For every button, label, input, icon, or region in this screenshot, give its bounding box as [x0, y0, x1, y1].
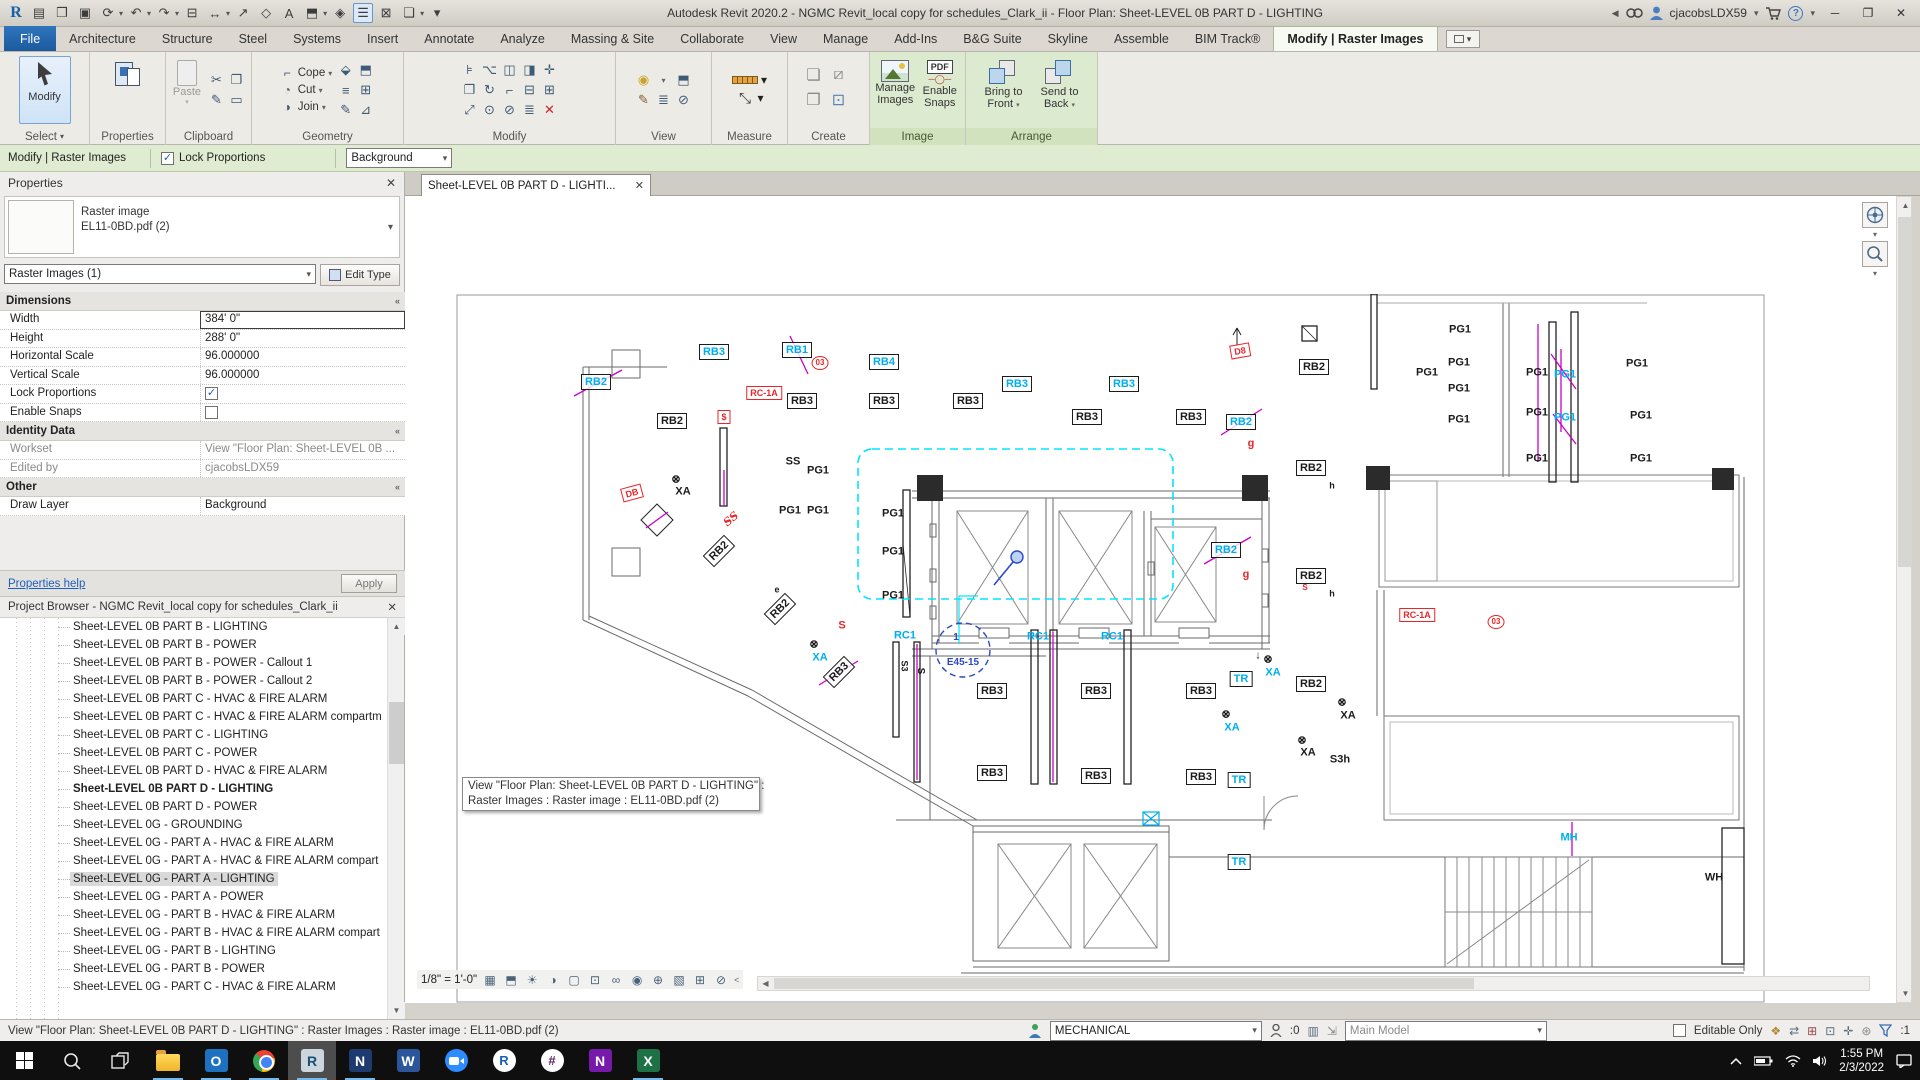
scroll-up-icon[interactable]: ▲ — [388, 618, 405, 635]
status-drag-on-selection-icon[interactable]: ✛ — [1843, 1024, 1853, 1038]
taskbar-clock[interactable]: 1:55 PM 2/3/2022 — [1839, 1047, 1884, 1075]
dimension-button[interactable]: ▾ — [732, 73, 767, 87]
ribbon-tab-assemble[interactable]: Assemble — [1101, 26, 1182, 51]
status-filter-icon[interactable] — [1879, 1024, 1892, 1037]
wall-opening-icon[interactable]: ⬒ — [356, 61, 375, 80]
status-gear-icon[interactable]: ⊛ — [1861, 1024, 1871, 1038]
element-filter-dropdown[interactable]: Raster Images (1)▾ — [4, 264, 316, 284]
browser-item[interactable]: Sheet-LEVEL 0B PART B - POWER - Callout … — [0, 672, 388, 690]
draw-layer-dropdown[interactable]: Background▾ — [346, 148, 452, 168]
browser-item[interactable]: Sheet-LEVEL 0G - PART B - LIGHTING — [0, 942, 388, 960]
action-center-icon[interactable] — [1896, 1054, 1912, 1068]
help-icon[interactable]: ? — [1788, 6, 1803, 21]
lightbulb-icon[interactable]: ◉ — [634, 71, 653, 90]
hide-analytical-model-icon[interactable]: ⊞ — [692, 972, 708, 988]
redo-icon-chevron[interactable]: ▾ — [175, 9, 179, 18]
vertical-scrollbar[interactable]: ▲ ▼ — [1896, 196, 1912, 1003]
plan-label-g: g — [1248, 439, 1255, 450]
match-type-icon[interactable]: ✎ — [207, 91, 226, 110]
view-tab-close-icon[interactable]: ✕ — [635, 179, 644, 192]
taskbar-app-bluebeam-revu[interactable]: R — [480, 1041, 528, 1080]
revit-logo[interactable]: R — [6, 3, 26, 23]
browser-item[interactable]: Sheet-LEVEL 0G - PART A - POWER — [0, 888, 388, 906]
properties-close-icon[interactable]: ✕ — [386, 176, 396, 190]
active-workset-dropdown[interactable]: MECHANICAL▾ — [1050, 1021, 1262, 1041]
property-value[interactable]: cjacobsLDX59 — [200, 460, 405, 478]
plan-label-RB2: RB2 — [1211, 542, 1241, 558]
property-row-lock-proportions[interactable]: Lock Proportions✓ — [0, 385, 405, 404]
search-icon[interactable] — [1626, 7, 1643, 20]
create-similar-icon[interactable]: ⧄ — [829, 66, 848, 85]
snap-icon: ─◯─ — [928, 74, 951, 85]
property-value[interactable]: 96.000000 — [200, 348, 405, 366]
app-store-cart-icon[interactable] — [1765, 7, 1781, 20]
beam-coping-icon[interactable]: ⬙ — [336, 61, 355, 80]
worksets-dialog-icon[interactable]: ▥ — [1308, 1024, 1319, 1038]
help-menu-chevron-icon[interactable]: ▾ — [1810, 8, 1815, 19]
plan-label-TR: TR — [1228, 772, 1251, 788]
view-scale-button[interactable]: 1/8" = 1'-0" — [421, 974, 477, 986]
property-row-width[interactable]: Width384' 0" — [0, 311, 405, 330]
plan-label-RB2: RB2 — [703, 535, 736, 568]
property-label: Lock Proportions — [0, 385, 200, 403]
join-button[interactable]: ◑Join▾ — [280, 100, 333, 115]
plan-label-PG1: PG1 — [882, 547, 904, 558]
panel-label-select[interactable]: Select▾ — [0, 128, 89, 145]
scale-icon[interactable]: ⤢ — [460, 101, 479, 120]
panel-modify: ⊧⌥◫◨✛❐↻⌐⊟⊞⤢⊙⊘≣✕ Modify — [404, 52, 616, 145]
ribbon-tab-b-g-suite[interactable]: B&G Suite — [950, 26, 1034, 51]
property-label: Height — [0, 330, 200, 348]
property-value[interactable]: ✓ — [200, 385, 405, 403]
status-arrow-icon[interactable]: ⇲ — [1327, 1024, 1337, 1038]
copy-icon[interactable]: ❐ — [460, 81, 479, 100]
ribbon-tab-architecture[interactable]: Architecture — [56, 26, 149, 51]
panel-label-view[interactable]: View — [616, 128, 711, 145]
project-browser-title: Project Browser - NGMC Revit_local copy … — [8, 601, 338, 613]
excel-icon: X — [637, 1049, 660, 1072]
panel-label-clipboard[interactable]: Clipboard — [166, 128, 251, 145]
create-assembly-icon[interactable]: ❐ — [804, 91, 823, 110]
ribbon-tab-steel[interactable]: Steel — [226, 26, 281, 51]
property-row-draw-layer[interactable]: Draw LayerBackground — [0, 497, 405, 516]
unpin-icon[interactable]: ⊘ — [500, 101, 519, 120]
panel-label-arrange[interactable]: Arrange — [966, 128, 1097, 145]
type-category: Raster image — [81, 205, 170, 220]
shadows-icon[interactable]: ◑ — [545, 972, 561, 988]
scrollbar-thumb[interactable] — [389, 702, 404, 764]
browser-item[interactable]: Sheet-LEVEL 0B PART D - HVAC & FIRE ALAR… — [0, 762, 388, 780]
ribbon-tab-skyline[interactable]: Skyline — [1035, 26, 1101, 51]
lock-proportions-checkbox[interactable]: ✓ — [161, 152, 174, 165]
browser-item[interactable]: Sheet-LEVEL 0B PART C - POWER — [0, 744, 388, 762]
view-chevron-icon[interactable]: ▾ — [654, 71, 673, 90]
browser-item[interactable]: Sheet-LEVEL 0B PART D - POWER — [0, 798, 388, 816]
viewbar-collapse-icon[interactable]: < — [734, 975, 739, 985]
cut-to-clipboard-icon[interactable]: ✂ — [207, 71, 226, 90]
properties-window-icon[interactable]: ▤ — [29, 3, 49, 23]
save-icon[interactable]: ▣ — [75, 3, 95, 23]
plan-label-TR: TR — [1230, 671, 1253, 687]
editable-only-checkbox[interactable] — [1673, 1024, 1686, 1037]
plan-label-RC1: RC1 — [1101, 632, 1123, 643]
plan-label-RB3: RB3 — [787, 393, 817, 409]
text-icon[interactable]: A — [279, 3, 299, 23]
browser-item[interactable]: Sheet-LEVEL 0B PART C - LIGHTING — [0, 726, 388, 744]
override-graphics-icon[interactable]: ≣ — [654, 91, 673, 110]
sun-path-icon[interactable]: ☀ — [524, 972, 540, 988]
property-value[interactable]: 288' 0" — [200, 330, 405, 348]
ribbon-tab-massing-site[interactable]: Massing & Site — [558, 26, 667, 51]
thin-lines-icon[interactable]: ☰ — [353, 3, 373, 23]
taskbar-app-chrome[interactable] — [240, 1041, 288, 1080]
property-value[interactable]: Background — [200, 497, 405, 515]
hammer-icon[interactable]: ⊿ — [356, 101, 375, 120]
measure-icon[interactable]: ↗ — [233, 3, 253, 23]
show-crop-region-icon[interactable]: ⊡ — [587, 972, 603, 988]
taskbar-app-zoom[interactable] — [432, 1041, 480, 1080]
switch-windows-icon[interactable]: ❏ — [399, 3, 419, 23]
paintbrush-icon[interactable]: ✎ — [634, 91, 653, 110]
project-browser-close-icon[interactable]: ✕ — [387, 600, 397, 614]
ribbon-tab-analyze[interactable]: Analyze — [487, 26, 557, 51]
trim-icon[interactable]: ⌐ — [500, 81, 519, 100]
outlook-icon: O — [205, 1049, 228, 1072]
mirror-icon[interactable]: ◫ — [500, 61, 519, 80]
demolish-icon[interactable]: ≡ — [336, 81, 355, 100]
taskbar-app-outlook[interactable]: O — [192, 1041, 240, 1080]
browser-item[interactable]: Sheet-LEVEL 0G - PART B - HVAC & FIRE AL… — [0, 906, 388, 924]
worksharing-display-icon[interactable]: ⊕ — [650, 972, 666, 988]
send-to-back-icon — [1045, 60, 1075, 86]
ribbon-tab-file[interactable]: File — [4, 26, 56, 51]
browser-item[interactable]: Sheet-LEVEL 0G - PART A - HVAC & FIRE AL… — [0, 834, 388, 852]
modify-button[interactable]: Modify — [19, 56, 71, 124]
panel-label-image[interactable]: Image — [870, 128, 965, 145]
revit-icon: R — [301, 1049, 324, 1072]
bring-to-front-button[interactable]: Bring toFront ▾ — [978, 56, 1030, 124]
panel-label-geometry[interactable]: Geometry — [252, 128, 403, 145]
redo-icon[interactable]: ↷ — [154, 3, 174, 23]
ribbon-display-icon — [1454, 35, 1464, 43]
property-row-vertical-scale[interactable]: Vertical Scale96.000000 — [0, 367, 405, 386]
visual-style-icon[interactable]: ⬒ — [503, 972, 519, 988]
clipboard-extra-icon[interactable]: ▭ — [227, 91, 246, 110]
enable-snaps-button[interactable]: PDF ─◯─ EnableSnaps — [920, 56, 961, 124]
bluebeam-revu-icon: R — [493, 1049, 516, 1072]
sync-with-central-icon[interactable]: ⟳ — [98, 3, 118, 23]
render-icon[interactable]: ⬒ — [674, 71, 693, 90]
options-context-label: Modify | Raster Images — [0, 152, 126, 164]
ribbon-tab-insert[interactable]: Insert — [354, 26, 411, 51]
plan-label-h: h — [1329, 482, 1335, 491]
property-row-workset[interactable]: WorksetView "Floor Plan: Sheet-LEVEL 0B … — [0, 441, 405, 460]
copy-to-clipboard-icon[interactable]: ❐ — [227, 71, 246, 90]
mirror-draw-icon[interactable]: ◨ — [520, 61, 539, 80]
status-keynote-icon[interactable]: ❖ — [1770, 1024, 1781, 1038]
rotate-icon[interactable]: ↻ — [480, 81, 499, 100]
cut-button[interactable]: ◔Cut▾ — [280, 83, 333, 98]
chrome-icon — [253, 1050, 275, 1072]
property-value[interactable]: 96.000000 — [200, 367, 405, 385]
minimize-button[interactable]: ─ — [1822, 3, 1848, 23]
switch-windows-icon-chevron[interactable]: ▾ — [420, 9, 424, 18]
ribbon-tab-modify-raster-images[interactable]: Modify | Raster Images — [1273, 26, 1437, 51]
qat-customize-icon[interactable]: ▾ — [427, 3, 447, 23]
browser-item[interactable]: Sheet-LEVEL 0B PART B - LIGHTING — [0, 618, 388, 636]
plan-label-⊗: ⊗ — [809, 640, 818, 651]
property-row-edited-by[interactable]: Edited bycjacobsLDX59 — [0, 460, 405, 479]
view-tab[interactable]: Sheet-LEVEL 0B PART D - LIGHTI...✕ — [421, 174, 651, 196]
align-icon[interactable]: ⊧ — [460, 61, 479, 80]
plan-label-PG1: PG1 — [1554, 370, 1576, 381]
notepad-icon: N — [349, 1049, 372, 1072]
scroll-down-icon[interactable]: ▼ — [388, 1002, 405, 1019]
create-group-icon[interactable]: ❏ — [804, 66, 823, 85]
plan-label-XA: XA — [1340, 711, 1355, 722]
panel-clipboard: Paste▾ ✂ ❐ ✎ ▭ Clipboard — [166, 52, 252, 145]
type-selector[interactable]: Raster image EL11-0BD.pdf (2) ▾ — [4, 196, 400, 258]
taskbar-app-excel[interactable]: X — [624, 1041, 672, 1080]
plan-label-S: S — [838, 621, 845, 632]
temporary-hide-isolate-icon[interactable]: ∞ — [608, 972, 624, 988]
browser-item[interactable]: Sheet-LEVEL 0G - PART B - HVAC & FIRE AL… — [0, 924, 388, 942]
panel-label-create[interactable]: Create — [788, 128, 869, 145]
ribbon-tab-add-ins[interactable]: Add-Ins — [881, 26, 950, 51]
detail-level-icon[interactable]: ▦ — [482, 972, 498, 988]
design-option-dropdown[interactable]: Main Model▾ — [1345, 1021, 1547, 1041]
undo-icon[interactable]: ↶ — [126, 3, 146, 23]
ribbon-display-toggle[interactable]: ▾ — [1446, 30, 1480, 48]
plan-label-PG1: PG1 — [1630, 454, 1652, 465]
enable-snaps-checkbox[interactable] — [205, 406, 218, 419]
taskbar-app-file-explorer[interactable] — [144, 1041, 192, 1080]
volume-icon[interactable] — [1813, 1055, 1827, 1067]
lock-proportions-label: Lock Proportions — [179, 152, 265, 164]
tag-icon[interactable]: ◇ — [256, 3, 276, 23]
ruler-icon — [732, 76, 758, 84]
plan-label-DB: DB — [620, 484, 644, 503]
default-3d-view-icon-chevron[interactable]: ▾ — [323, 9, 327, 18]
linework-icon[interactable]: ⊘ — [674, 91, 693, 110]
plan-label-PG1: PG1 — [1448, 358, 1470, 369]
windows-taskbar: ORNWR#NX 1:55 PM 2/3/2022 — [0, 1041, 1920, 1080]
lock-proportions-checkbox[interactable]: ✓ — [205, 387, 218, 400]
offset-icon[interactable]: ⌥ — [480, 61, 499, 80]
open-icon[interactable]: ❒ — [52, 3, 72, 23]
plan-label-TR: TR — [1228, 854, 1251, 870]
plan-label-PG1: PG1 — [1448, 415, 1470, 426]
plan-label-XA: XA — [1265, 668, 1280, 679]
plan-label-PG1: PG1 — [1449, 325, 1471, 336]
taskbar-search-button[interactable] — [48, 1041, 96, 1080]
section-icon[interactable]: ◈ — [330, 3, 350, 23]
pin-icon[interactable]: ⊙ — [480, 101, 499, 120]
ribbon-tab-view[interactable]: View — [757, 26, 810, 51]
scroll-up-icon[interactable]: ▲ — [1897, 197, 1914, 214]
property-section-identity-data[interactable]: Identity Data« — [0, 422, 405, 441]
plan-label-S: S — [915, 668, 925, 675]
model-canvas[interactable]: RB3RB103RB4RB3RB3RB3RB3RB3RB3RB3RB2RB2RB… — [405, 196, 1896, 1003]
type-selector-chevron-icon[interactable]: ▾ — [388, 222, 399, 233]
zoom-icon — [445, 1049, 468, 1072]
browser-item[interactable]: Sheet-LEVEL 0B PART B - POWER — [0, 636, 388, 654]
property-label: Enable Snaps — [0, 404, 200, 422]
ribbon-tab-bim-track-[interactable]: BIM Track® — [1182, 26, 1273, 51]
plan-label-RB3: RB3 — [869, 393, 899, 409]
property-section-other[interactable]: Other« — [0, 478, 405, 497]
restore-button[interactable]: ❐ — [1855, 3, 1881, 23]
split-icon[interactable]: ⊟ — [520, 81, 539, 100]
status-exclude-links-icon[interactable]: ⇄ — [1789, 1024, 1799, 1038]
panel-label-measure[interactable]: Measure — [712, 128, 787, 145]
panel-label-properties[interactable]: Properties — [90, 128, 165, 145]
edit-type-button[interactable]: Edit Type — [320, 264, 400, 286]
taskbar-app-onenote[interactable]: N — [576, 1041, 624, 1080]
task-view-button[interactable] — [96, 1041, 144, 1080]
delete-icon[interactable]: ✕ — [540, 101, 559, 120]
view-tab-bar: Sheet-LEVEL 0B PART D - LIGHTI...✕ — [405, 172, 1920, 196]
browser-item[interactable]: Sheet-LEVEL 0B PART C - HVAC & FIRE ALAR… — [0, 708, 388, 726]
default-3d-view-icon[interactable]: ⬒ — [302, 3, 322, 23]
print-icon[interactable]: ⊟ — [182, 3, 202, 23]
panel-create: ❏ ⧄ ❐ ⊡ Create — [788, 52, 870, 145]
send-to-back-button[interactable]: Send toBack ▾ — [1034, 56, 1086, 124]
plan-label-PG1: PG1 — [779, 506, 801, 517]
panel-label-modify[interactable]: Modify — [404, 128, 615, 145]
property-row-enable-snaps[interactable]: Enable Snaps — [0, 404, 405, 423]
unjoin-icon[interactable]: ⊞ — [356, 81, 375, 100]
ribbon: Modify Select▾ Properties Paste▾ ✂ — [0, 52, 1920, 145]
property-value[interactable] — [200, 404, 405, 422]
property-value[interactable]: View "Floor Plan: Sheet-LEVEL 0B ... — [200, 441, 405, 459]
edit-type-icon — [329, 269, 341, 281]
apply-button[interactable]: Apply — [341, 574, 397, 593]
wifi-icon[interactable] — [1785, 1055, 1801, 1067]
browser-item[interactable]: Sheet-LEVEL 0G - PART B - POWER — [0, 960, 388, 978]
reveal-hidden-elements-icon[interactable]: ◉ — [629, 972, 645, 988]
horizontal-scrollbar[interactable]: ◀ — [757, 976, 1870, 991]
plan-label-WH: WH — [1705, 873, 1723, 884]
property-label: Workset — [0, 441, 200, 459]
move-icon[interactable]: ✛ — [540, 61, 559, 80]
property-value[interactable]: 384' 0" — [200, 311, 405, 329]
user-menu-chevron-icon[interactable]: ▾ — [1754, 8, 1759, 19]
browser-item[interactable]: Sheet-LEVEL 0G - PART A - LIGHTING — [0, 870, 388, 888]
battery-icon[interactable] — [1754, 1056, 1773, 1066]
manage-images-button[interactable]: ManageImages — [875, 56, 916, 124]
plan-label-⊗: ⊗ — [1263, 655, 1272, 666]
taskbar-app-word[interactable]: W — [384, 1041, 432, 1080]
status-select-underlay-icon[interactable]: ⊡ — [1825, 1024, 1835, 1038]
panel-view: ◉ ▾ ⬒ ✎ ≣ ⊘ View — [616, 52, 712, 145]
property-label: Vertical Scale — [0, 367, 200, 385]
plan-label-h: h — [1329, 590, 1335, 599]
temporary-view-properties-icon[interactable]: ▧ — [671, 972, 687, 988]
zoom-chevron-icon[interactable]: ▾ — [1862, 269, 1888, 278]
plan-label-RC-1A: RC-1A — [1399, 608, 1435, 622]
plan-label-1: 1 — [953, 633, 959, 643]
aligned-dimension-icon[interactable]: ↔ — [205, 3, 225, 23]
undo-icon-chevron[interactable]: ▾ — [147, 9, 151, 18]
ribbon-tab-structure[interactable]: Structure — [149, 26, 226, 51]
property-row-height[interactable]: Height288' 0" — [0, 330, 405, 349]
property-section-dimensions[interactable]: Dimensions« — [0, 292, 405, 311]
browser-item[interactable]: Sheet-LEVEL 0G - PART C - HVAC & FIRE AL… — [0, 978, 388, 996]
plan-label-RB3: RB3 — [1186, 769, 1216, 785]
properties-toggle-button[interactable] — [102, 56, 154, 124]
floor-plan[interactable]: RB3RB103RB4RB3RB3RB3RB3RB3RB3RB3RB2RB2RB… — [456, 294, 1766, 1004]
reveal-constraints-icon[interactable]: ⊘ — [713, 972, 729, 988]
browser-item[interactable]: Sheet-LEVEL 0B PART C - HVAC & FIRE ALAR… — [0, 690, 388, 708]
signed-in-user[interactable]: cjacobsLDX59 — [1670, 6, 1747, 20]
properties-help-link[interactable]: Properties help — [8, 578, 85, 590]
editing-requests-count: :0 — [1290, 1025, 1300, 1037]
browser-item[interactable]: Sheet-LEVEL 0G - GROUNDING — [0, 816, 388, 834]
ribbon-tab-collaborate[interactable]: Collaborate — [667, 26, 757, 51]
measure-button[interactable]: ⤡▾ — [735, 89, 763, 108]
browser-item[interactable]: Sheet-LEVEL 0G - PART A - HVAC & FIRE AL… — [0, 852, 388, 870]
plan-label-RB3: RB3 — [1081, 768, 1111, 784]
status-exclude-pinned-icon[interactable]: ⊞ — [1807, 1024, 1817, 1038]
aligned-dimension-icon-chevron[interactable]: ▾ — [226, 9, 230, 18]
create-parts-icon[interactable]: ⊡ — [829, 91, 848, 110]
browser-item[interactable]: Sheet-LEVEL 0B PART D - LIGHTING — [0, 780, 388, 798]
editing-requests-icon[interactable] — [1270, 1024, 1282, 1037]
word-icon: W — [397, 1049, 420, 1072]
properties-title: Properties — [8, 176, 63, 190]
vscroll-thumb[interactable] — [1898, 217, 1911, 567]
property-label: Draw Layer — [0, 497, 200, 515]
steering-wheel-button[interactable] — [1862, 202, 1888, 228]
crop-view-icon[interactable]: ▢ — [566, 972, 582, 988]
plan-label-RB2: RB2 — [764, 593, 797, 626]
ribbon-tab-manage[interactable]: Manage — [810, 26, 881, 51]
plan-label-PG1: PG1 — [807, 466, 829, 477]
paste-button[interactable]: Paste▾ — [171, 56, 203, 124]
plan-label-⊗: ⊗ — [1297, 736, 1306, 747]
match-icon[interactable]: ≣ — [520, 101, 539, 120]
ribbon-tab-annotate[interactable]: Annotate — [411, 26, 487, 51]
hscroll-thumb[interactable] — [774, 978, 1474, 989]
tray-chevron-icon[interactable] — [1730, 1057, 1742, 1065]
ribbon-tab-bar: FileArchitectureStructureSteelSystemsIns… — [0, 27, 1920, 52]
scroll-left-icon[interactable]: ◀ — [758, 977, 773, 990]
array-icon[interactable]: ⊞ — [540, 81, 559, 100]
type-thumbnail — [8, 200, 74, 254]
browser-item[interactable]: Sheet-LEVEL 0B PART B - POWER - Callout … — [0, 654, 388, 672]
taskbar-app-slack[interactable]: # — [528, 1041, 576, 1080]
close-button[interactable]: ✕ — [1888, 3, 1914, 23]
start-button[interactable] — [0, 1041, 48, 1080]
scroll-down-icon[interactable]: ▼ — [1897, 985, 1914, 1002]
project-browser-scrollbar[interactable]: ▲ ▼ — [387, 618, 404, 1019]
zoom-tool-button[interactable] — [1862, 241, 1888, 267]
paint-icon[interactable]: ✎ — [336, 101, 355, 120]
ribbon-tab-systems[interactable]: Systems — [280, 26, 354, 51]
taskbar-app-notepad[interactable]: N — [336, 1041, 384, 1080]
close-hidden-windows-icon[interactable]: ⊠ — [376, 3, 396, 23]
status-bar: View "Floor Plan: Sheet-LEVEL 0B PART D … — [0, 1019, 1920, 1041]
sync-with-central-icon-chevron[interactable]: ▾ — [119, 9, 123, 18]
cope-button[interactable]: ⌐Cope▾ — [280, 66, 333, 81]
infocenter-collapse-icon[interactable]: ◀ — [1612, 8, 1619, 19]
title-bar: R▤❒▣⟳▾↶▾↷▾⊟↔▾↗◇A⬒▾◈☰⊠❏▾▾ Autodesk Revit … — [0, 0, 1920, 27]
plan-label-PG1: PG1 — [1526, 454, 1548, 465]
navbar-chevron-icon[interactable]: ▾ — [1862, 230, 1888, 239]
property-row-horizontal-scale[interactable]: Horizontal Scale96.000000 — [0, 348, 405, 367]
taskbar-app-revit[interactable]: R — [288, 1041, 336, 1080]
